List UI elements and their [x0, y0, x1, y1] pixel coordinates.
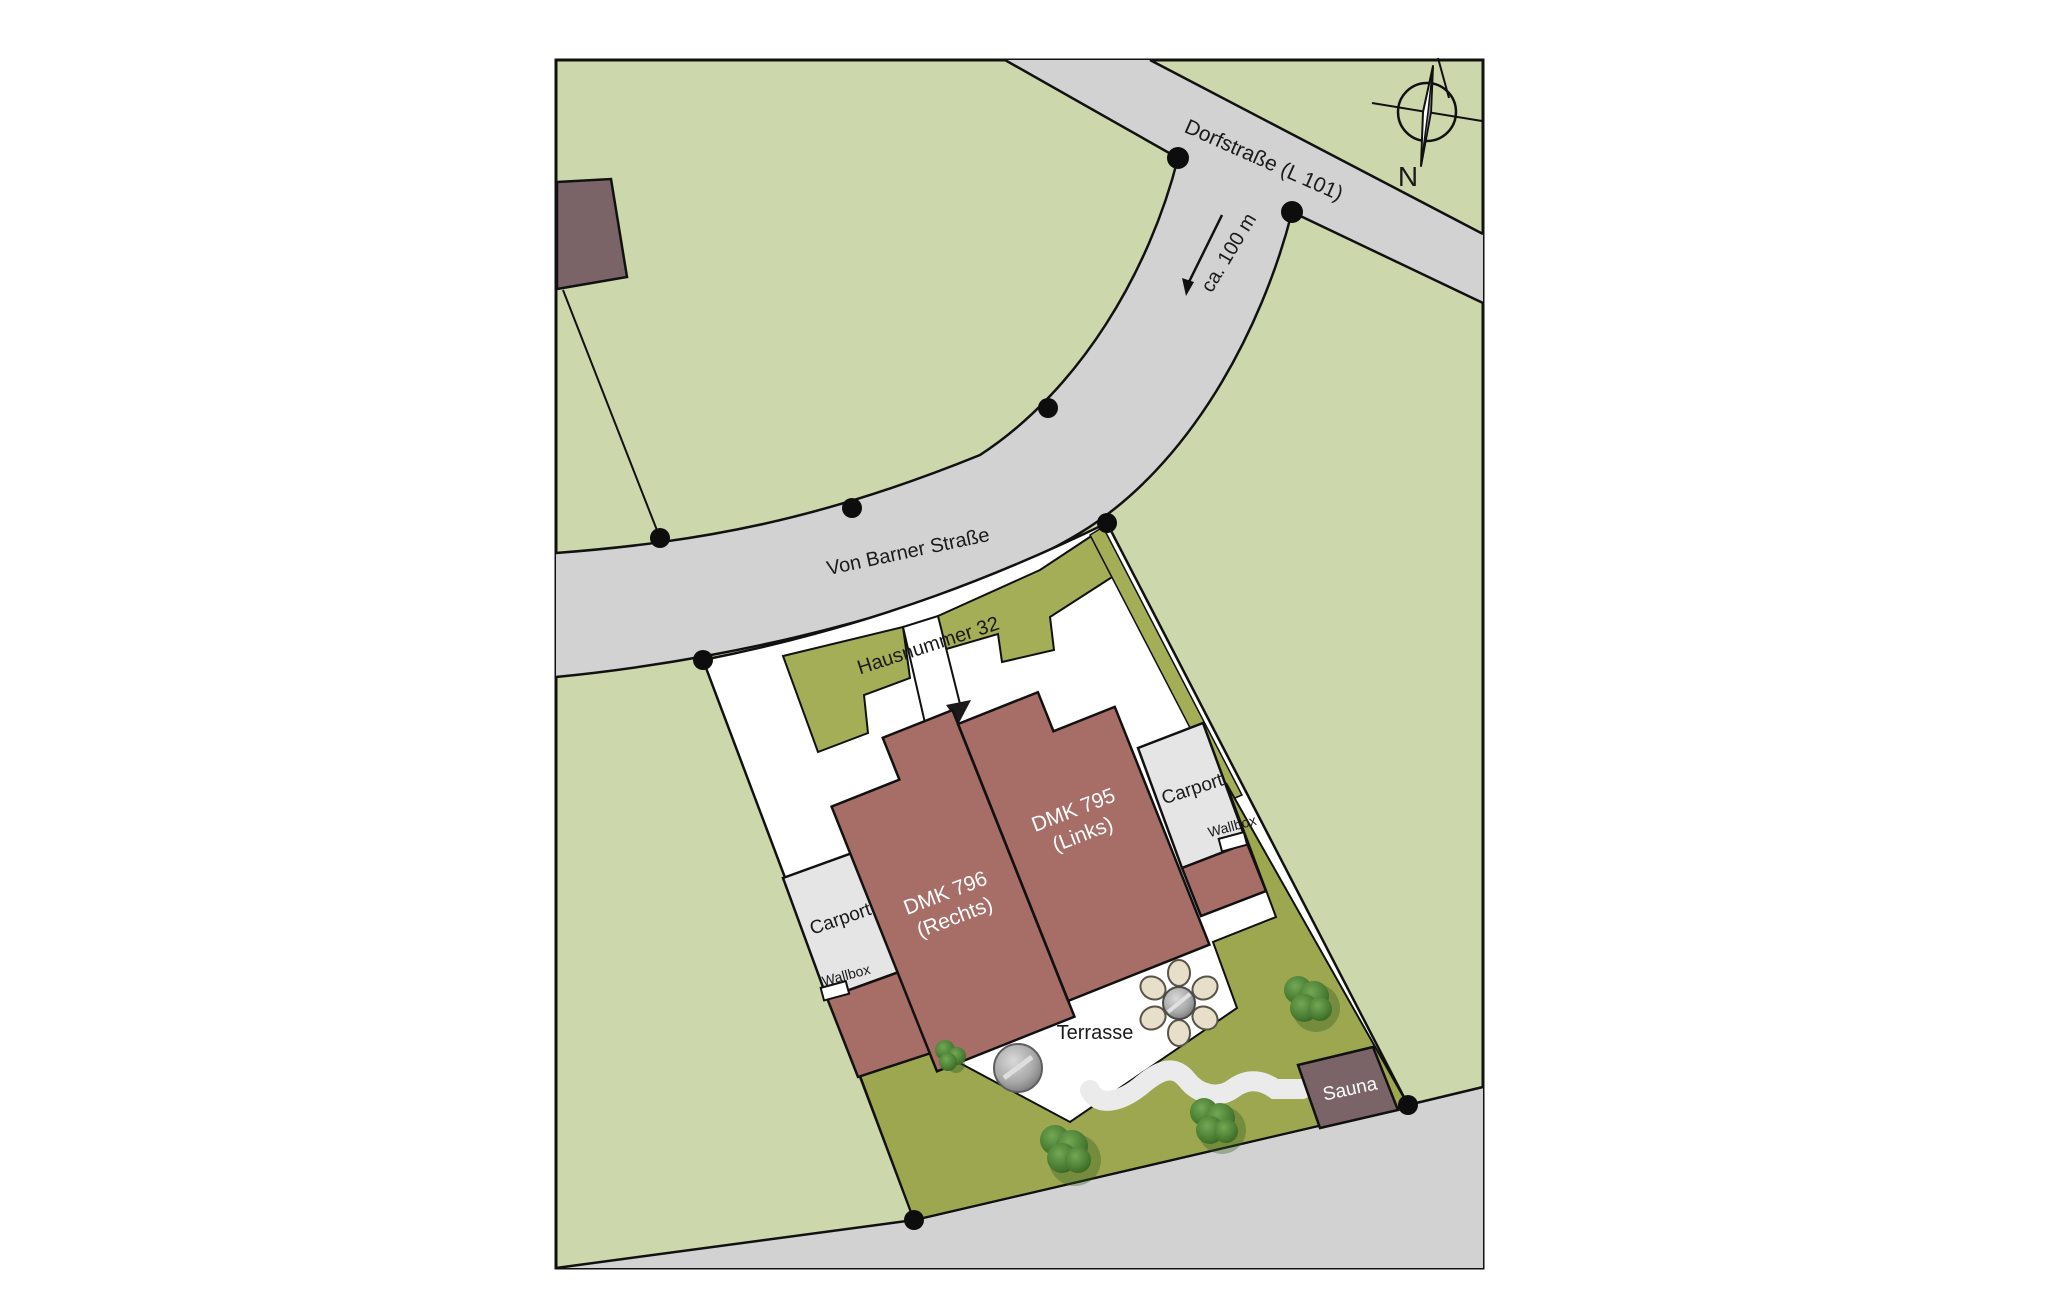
- site-plan-page: { "plan": { "streets": { "dorfstrasse": …: [0, 0, 2048, 1303]
- survey-point: [904, 1210, 924, 1230]
- survey-point: [842, 498, 862, 518]
- survey-point: [650, 528, 670, 548]
- survey-point: [1398, 1095, 1418, 1115]
- survey-point: [1281, 201, 1303, 223]
- survey-point: [1167, 147, 1189, 169]
- survey-point: [1097, 513, 1117, 533]
- terrace-label: Terrasse: [1057, 1022, 1134, 1044]
- survey-point: [1038, 398, 1058, 418]
- site-plan-svg: Dorfstraße (L 101) Von Barner Straße ca.…: [0, 0, 2048, 1303]
- survey-point: [693, 650, 713, 670]
- compass-north-label: N: [1398, 161, 1418, 192]
